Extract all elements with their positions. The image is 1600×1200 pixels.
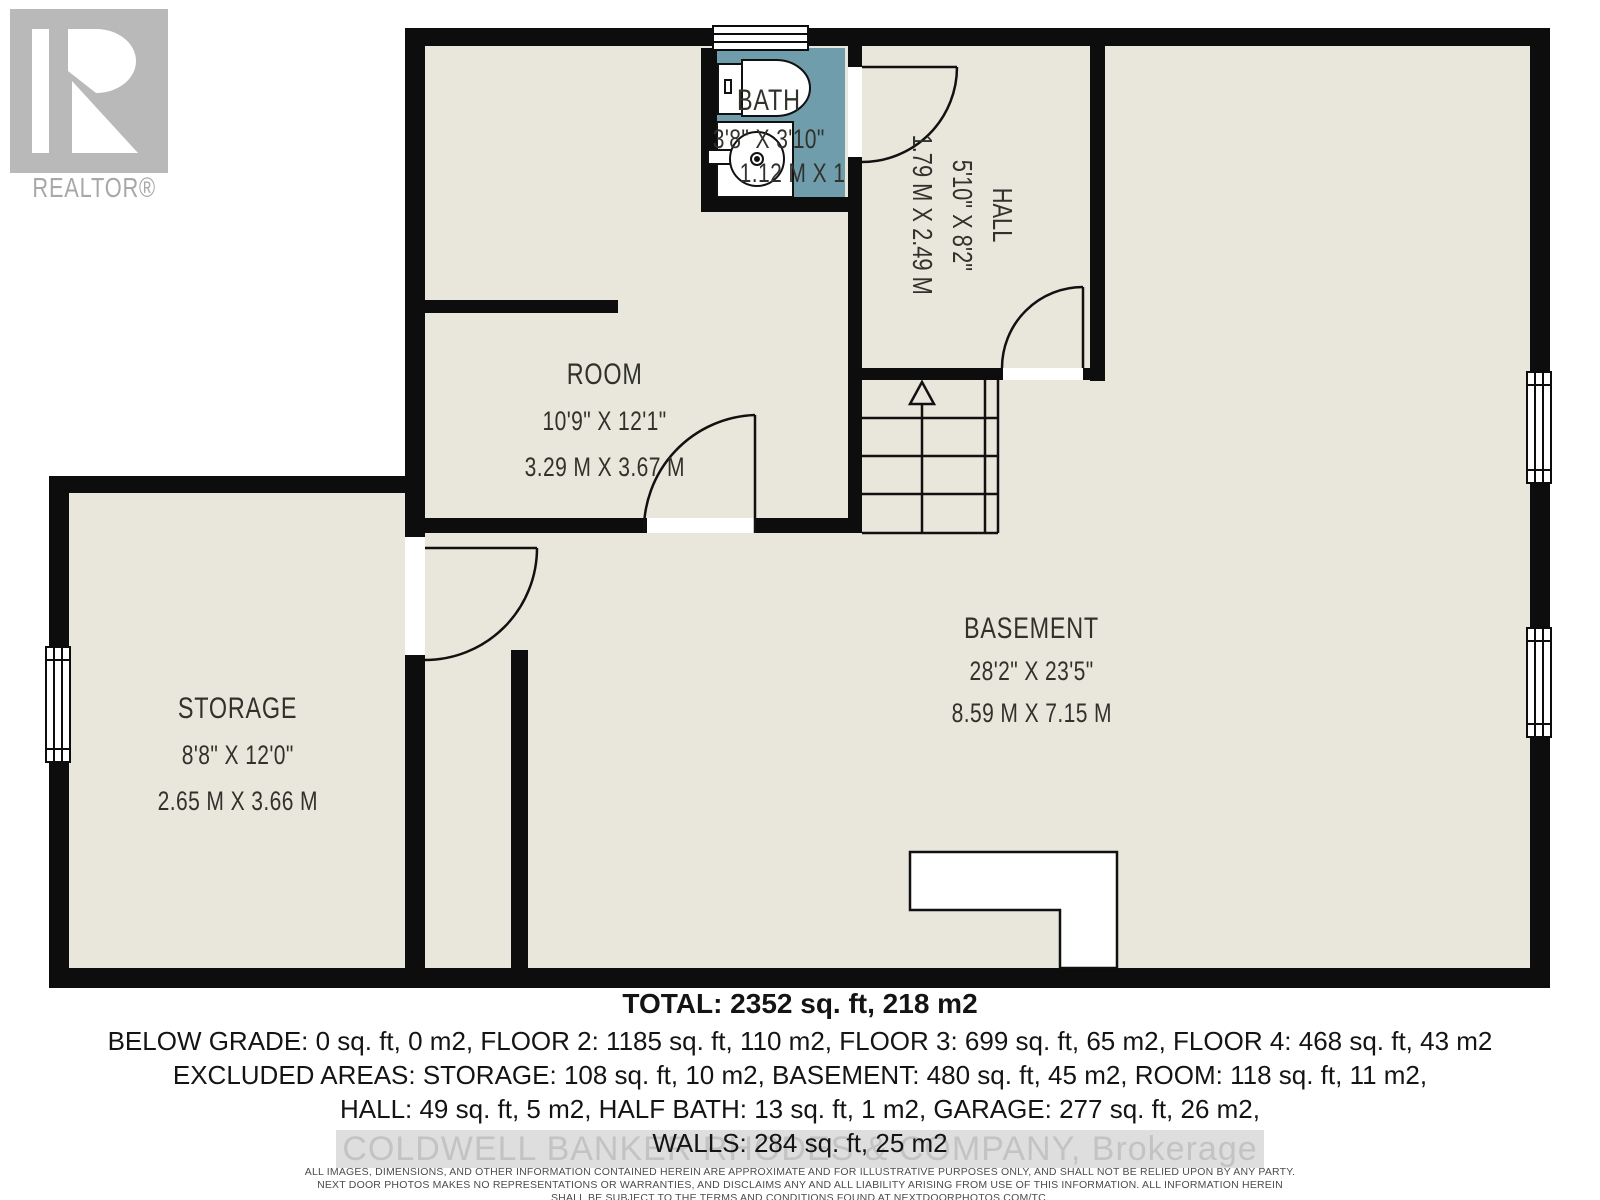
basement-wall-stub — [511, 650, 528, 968]
hall-room-label: HALL 5'10" X 8'2" 1.79 M X 2.49 M — [902, 105, 1022, 325]
room-dims-ft: 28'2" X 23'5" — [970, 650, 1094, 692]
summary-total: TOTAL: 2352 sq. ft, 218 m2 — [0, 988, 1600, 1020]
room-name: BASEMENT — [965, 608, 1100, 650]
window-icon — [1527, 372, 1551, 483]
realtor-logo-text: REALTOR® — [4, 172, 184, 204]
disclaimer-line: SHALL BE SUBJECT TO THE TERMS AND CONDIT… — [0, 1192, 1600, 1200]
summary-walls: WALLS: 284 sq. ft, 25 m2 — [0, 1128, 1600, 1159]
basement-room-label: BASEMENT 28'2" X 23'5" 8.59 M X 7.15 M — [882, 608, 1182, 734]
room-dims-m: 3.29 M X 3.67 M — [525, 444, 685, 490]
room-name: STORAGE — [178, 686, 297, 732]
room-room-label: ROOM 10'9" X 12'1" 3.29 M X 3.67 M — [455, 352, 755, 490]
room-dims-m: 1.79 M X 2.49 M — [902, 135, 942, 295]
window-icon — [713, 26, 808, 50]
summary-floors: BELOW GRADE: 0 sq. ft, 0 m2, FLOOR 2: 11… — [0, 1026, 1600, 1057]
summary-excluded-areas-2: HALL: 49 sq. ft, 5 m2, HALF BATH: 13 sq.… — [0, 1094, 1600, 1125]
room-partition-stub — [425, 300, 618, 313]
storage-room-label: STORAGE 8'8" X 12'0" 2.65 M X 3.66 M — [88, 686, 388, 824]
room-dims-ft: 8'8" X 12'0" — [182, 732, 294, 778]
room-name: BATH — [737, 82, 801, 120]
bath-dims-m: 1.12 M X 1.17 M — [717, 158, 845, 189]
bath-room-label: BATH 3'8" X 3'10" — [689, 82, 849, 158]
window-icon — [1527, 628, 1551, 737]
summary-excluded-areas: EXCLUDED AREAS: STORAGE: 108 sq. ft, 10 … — [0, 1060, 1600, 1091]
room-name: HALL — [982, 188, 1022, 243]
disclaimer-line: ALL IMAGES, DIMENSIONS, AND OTHER INFORM… — [0, 1166, 1600, 1178]
room-dims-ft: 3'8" X 3'10" — [713, 120, 825, 158]
realtor-logo-icon — [10, 9, 168, 173]
disclaimer-line: NEXT DOOR PHOTOS MAKES NO REPRESENTATION… — [0, 1179, 1600, 1191]
floorplan-page: REALTOR® BATH 3'8" X 3'10" 1.12 M X 1.17… — [0, 0, 1600, 1200]
room-dims-m: 8.59 M X 7.15 M — [952, 692, 1112, 734]
room-dims-ft: 10'9" X 12'1" — [543, 398, 667, 444]
window-icon — [46, 647, 70, 762]
room-name: ROOM — [567, 352, 643, 398]
room-dims-ft: 5'10" X 8'2" — [942, 159, 982, 270]
room-dims-m: 2.65 M X 3.66 M — [158, 778, 318, 824]
